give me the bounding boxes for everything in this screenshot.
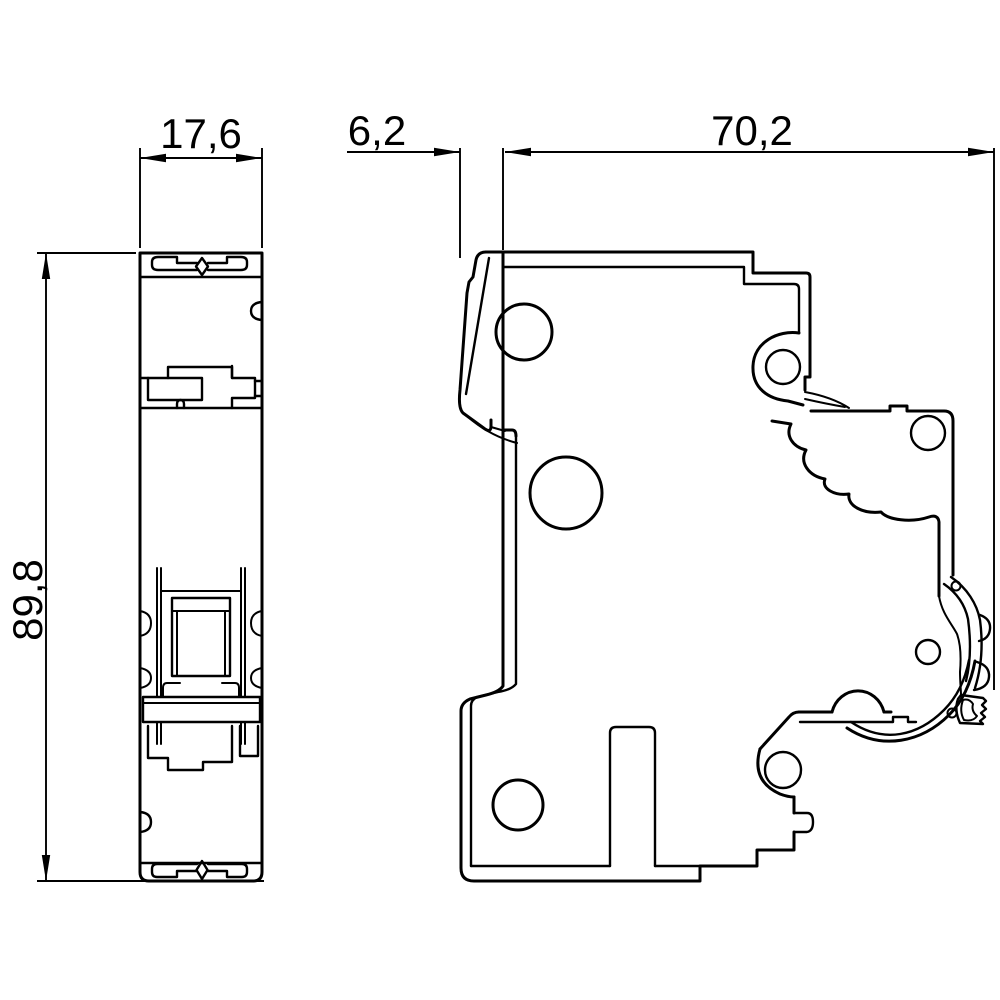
din-rail-arc-inner <box>851 660 969 735</box>
dimension-depth: 70,2 <box>503 107 994 690</box>
side-view <box>459 252 990 881</box>
boss-rivet-hole <box>766 350 800 384</box>
front-view <box>140 253 262 881</box>
clip-guide-line <box>939 596 961 695</box>
extension-line <box>37 253 264 881</box>
foot-strut <box>760 712 799 749</box>
rivet-hole-middle <box>530 457 602 529</box>
toggle-lower-block-right <box>240 726 258 756</box>
clip-tooth-sliver <box>805 392 849 408</box>
front-terminal-left-box <box>148 378 202 400</box>
serrated-clip-notch <box>961 700 977 721</box>
toggle-crossbar <box>143 697 260 722</box>
toggle-lever-inner-edge <box>466 258 489 394</box>
dim-label-width: 17,6 <box>160 110 242 157</box>
right-rivet-hole-upper <box>911 416 945 450</box>
dimension-handle-projection: 6,2 <box>347 107 460 258</box>
front-top-clip-diamond <box>196 258 208 275</box>
front-view-outline <box>140 253 262 881</box>
arrowhead-right <box>968 148 994 156</box>
front-edge-tab-right-2 <box>251 668 262 688</box>
toggle-bracket-right <box>222 683 239 697</box>
drawing-canvas: 17,6 6,2 70,2 89,8 <box>0 0 1000 1000</box>
dimension-drawing: 17,6 6,2 70,2 89,8 <box>0 0 1000 1000</box>
front-bottom-clip-right <box>208 864 247 877</box>
dim-label-handle-projection: 6,2 <box>348 107 406 154</box>
dimension-width: 17,6 <box>140 110 262 248</box>
center-tower <box>610 727 655 866</box>
dimension-height: 89,8 <box>4 253 264 881</box>
arrowhead-left <box>505 148 531 156</box>
scalloped-molding-edge <box>772 421 939 596</box>
foot-tab <box>794 813 813 832</box>
side-top-edge <box>486 252 810 390</box>
front-terminal-tab <box>168 367 232 378</box>
din-shelf-lower <box>800 717 916 722</box>
toggle-bracket-left <box>163 683 180 697</box>
front-top-clip-left <box>152 257 197 270</box>
front-edge-tab-left-2 <box>140 668 151 688</box>
front-terminal-right-step <box>232 366 255 408</box>
spring-pivot-hole-top <box>952 582 961 591</box>
din-shelf-hump <box>832 691 884 712</box>
front-top-clip-right <box>208 257 247 270</box>
extension-line <box>140 148 262 248</box>
dim-label-height: 89,8 <box>4 559 51 641</box>
side-lower-wall-outer <box>461 430 793 881</box>
front-left-latch-notch <box>140 812 151 832</box>
foot-arc <box>758 749 794 797</box>
toggle-window <box>172 598 230 676</box>
dim-label-depth: 70,2 <box>711 107 793 154</box>
arrowhead-right <box>434 148 460 156</box>
front-bottom-clip-left <box>152 864 197 877</box>
arrowhead-down <box>42 855 50 881</box>
arrowhead-up <box>42 253 50 279</box>
toggle-window-inner <box>172 611 230 676</box>
side-top-inner-line <box>503 267 799 333</box>
foot-rivet-hole <box>765 752 801 788</box>
toggle-posts <box>157 568 245 697</box>
front-edge-tab-left-1 <box>140 611 151 636</box>
right-pin-hole-small <box>916 640 940 664</box>
rivet-hole-lower-left <box>493 780 543 830</box>
front-right-latch-notch <box>251 302 262 320</box>
upper-right-boss <box>753 333 803 405</box>
front-edge-tab-right-1 <box>251 611 262 636</box>
